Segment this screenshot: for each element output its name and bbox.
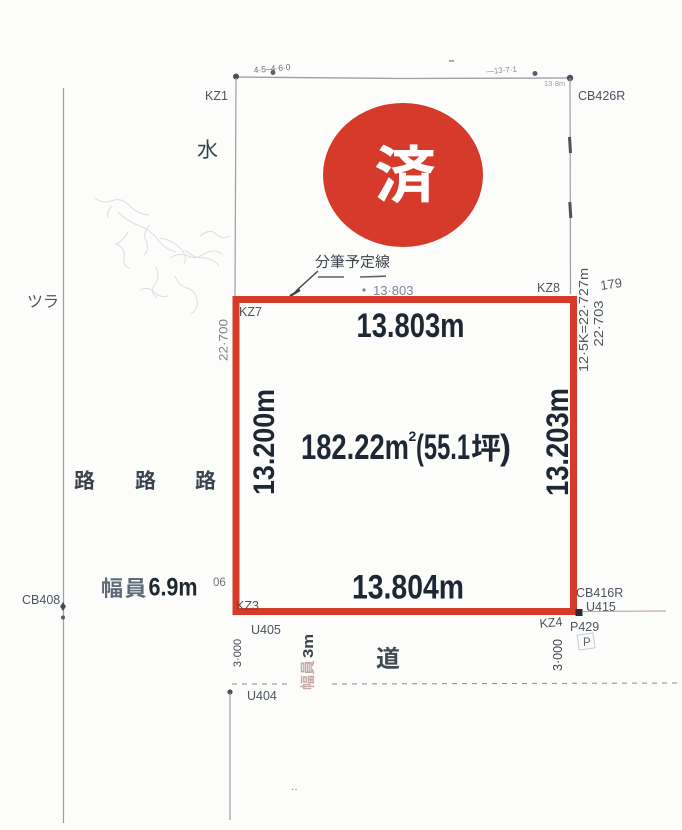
svg-text:4·5–4·6·0: 4·5–4·6·0	[253, 62, 291, 75]
svg-text:U404: U404	[247, 689, 277, 703]
svg-text:13·803: 13·803	[373, 283, 413, 298]
svg-text:CB426R: CB426R	[578, 89, 625, 103]
svg-text:6.9m: 6.9m	[149, 574, 198, 602]
svg-text:179: 179	[599, 275, 623, 293]
svg-text:(55.1: (55.1	[416, 427, 470, 467]
svg-text:KZ8: KZ8	[537, 281, 560, 295]
svg-text:KZ7: KZ7	[239, 305, 262, 319]
svg-text:U405: U405	[251, 623, 281, 637]
svg-text:KZ1: KZ1	[205, 89, 228, 103]
svg-text:CB408: CB408	[22, 593, 60, 607]
svg-text:―13·7·1: ―13·7·1	[486, 65, 518, 76]
svg-text:06: 06	[213, 577, 226, 589]
svg-text:12·5K=22·727m: 12·5K=22·727m	[577, 268, 591, 372]
svg-text:P: P	[583, 637, 591, 649]
svg-text:13.203m: 13.203m	[539, 388, 575, 496]
svg-text:): )	[500, 427, 511, 467]
svg-text:182.22m: 182.22m	[301, 427, 409, 467]
svg-text:3·000: 3·000	[551, 639, 565, 671]
svg-text:22·700: 22·700	[219, 319, 231, 361]
svg-text:13.200m: 13.200m	[248, 389, 281, 495]
svg-text:P429: P429	[570, 620, 599, 634]
svg-text:··: ··	[291, 784, 298, 795]
svg-text:13.803m: 13.803m	[357, 307, 465, 345]
svg-text:22·703: 22·703	[591, 301, 606, 347]
svg-text:CB416R: CB416R	[576, 586, 623, 600]
svg-text:3m: 3m	[300, 634, 317, 658]
svg-text:KZ3: KZ3	[236, 599, 259, 613]
svg-text:3·000: 3·000	[232, 639, 244, 667]
svg-text:13·8m: 13·8m	[544, 79, 565, 88]
svg-text:13.804m: 13.804m	[352, 569, 464, 607]
svg-text:KZ4: KZ4	[539, 615, 563, 631]
